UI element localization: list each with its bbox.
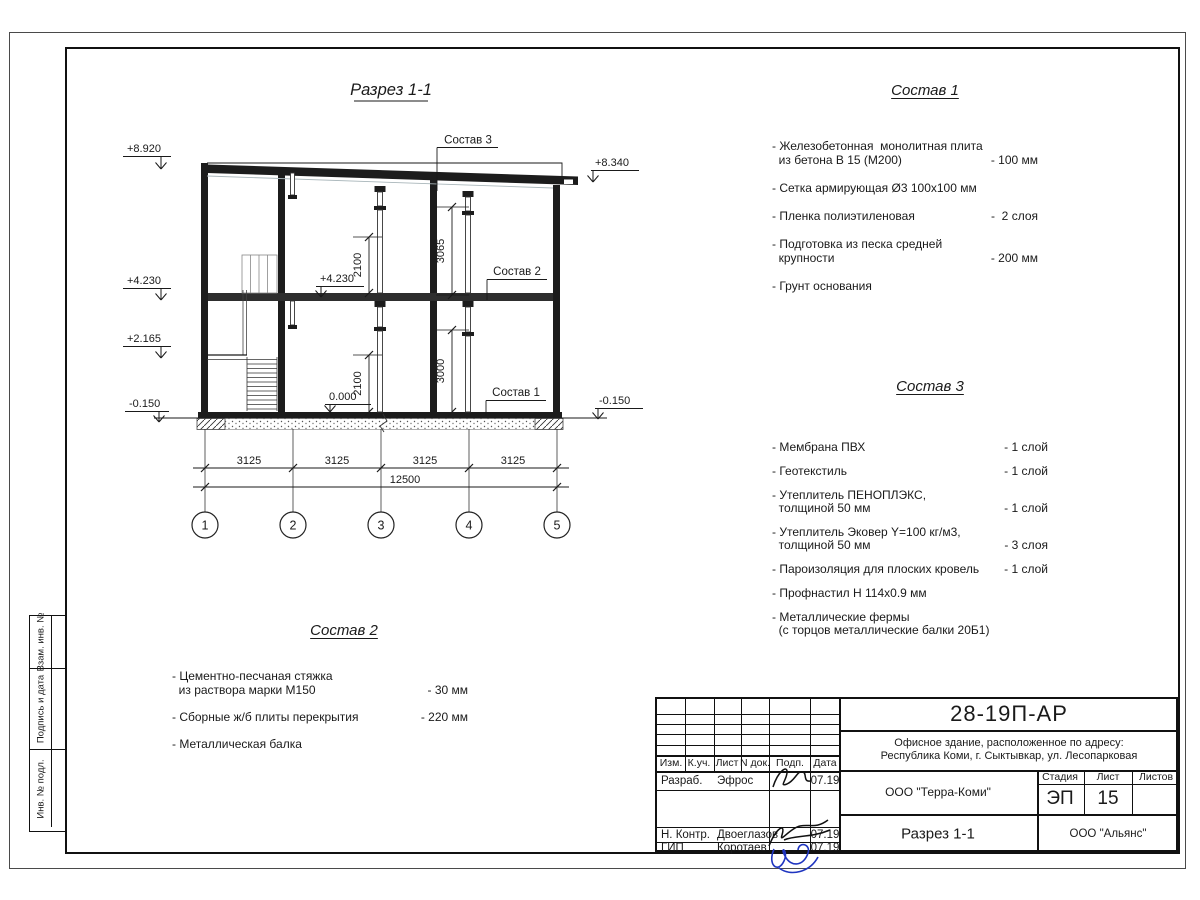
- axis-4: 4: [466, 519, 473, 533]
- dim-bay-1: 3125: [237, 455, 261, 467]
- elevation-top-right: +8.340: [588, 157, 640, 182]
- spec-sostav1-title: Состав 1: [792, 82, 1058, 99]
- dim-3000: 3000: [435, 359, 447, 383]
- spec-item: - Металлическая балка: [172, 737, 468, 751]
- spec-item: - Утеплитель Эковер Y=100 кг/м3, толщино…: [772, 526, 1048, 552]
- signature-razrab: [773, 769, 810, 787]
- spec-item: - Железобетонная монолитная плита из бет…: [772, 139, 1038, 167]
- spec-sostav2-title: Состав 2: [196, 622, 492, 639]
- svg-text:+4.230: +4.230: [320, 273, 354, 285]
- elevation-top-left: +8.920: [123, 143, 171, 169]
- spec-item: - Грунт основания: [772, 279, 1038, 293]
- signature-nkontr: [769, 820, 830, 846]
- spec-sostav2-block: Состав 2 - Цементно-песчаная стяжка из р…: [172, 622, 468, 764]
- spec-item: - Профнастил Н 114х0.9 мм: [772, 587, 1048, 600]
- axis-1: 1: [202, 519, 209, 533]
- signatures: [657, 699, 1180, 879]
- dim-total: 12500: [390, 474, 421, 486]
- spec-item: - Сетка армирующая Ø3 100х100 мм: [772, 181, 1038, 195]
- leader-sostav2-label: Состав 2: [493, 266, 541, 278]
- spec-item: - Мембрана ПВХ - 1 слой: [772, 441, 1048, 454]
- elevation-ground-left: -0.150: [125, 398, 169, 422]
- dim-2100-upper: 2100: [352, 253, 364, 277]
- svg-text:+2.165: +2.165: [127, 333, 161, 345]
- spec-sostav1-block: Состав 1 - Железобетонная монолитная пли…: [772, 82, 1038, 307]
- axis-3: 3: [378, 519, 385, 533]
- spec-sostav3-title: Состав 3: [792, 378, 1068, 395]
- spec-item: - Пароизоляция для плоских кровель - 1 с…: [772, 563, 1048, 576]
- elevation-ground-right: -0.150: [593, 395, 644, 419]
- axis-2: 2: [290, 519, 297, 533]
- svg-text:+8.340: +8.340: [595, 157, 629, 169]
- dim-bay-2: 3125: [325, 455, 349, 467]
- spec-item: - Геотекстиль - 1 слой: [772, 465, 1048, 478]
- spec-item: - Металлические фермы (с торцов металлич…: [772, 611, 1048, 637]
- strip-inv: Инв. № подл.: [30, 750, 66, 827]
- spec-item: - Сборные ж/б плиты перекрытия - 220 мм: [172, 710, 468, 724]
- leader-sostav1: Состав 1: [486, 387, 546, 416]
- spec-item: - Подготовка из песка средней крупности …: [772, 237, 1038, 265]
- section-title-text: Разрез 1-1: [350, 81, 432, 99]
- side-strips: Взам. инв. № Подпись и дата Инв. № подл.: [29, 615, 67, 832]
- dim-2100-lower: 2100: [352, 371, 364, 395]
- horizontal-dimensions: 3125 3125 3125 3125 12500: [193, 429, 569, 512]
- strip-inv-label: Инв. № подл.: [36, 759, 47, 818]
- dim-bay-3: 3125: [413, 455, 437, 467]
- dim-3065: 3065: [435, 239, 447, 263]
- spec-sostav3-block: Состав 3 - Мембрана ПВХ - 1 слой - Геоте…: [772, 378, 1048, 648]
- svg-text:-0.150: -0.150: [599, 395, 630, 407]
- title-block: Изм. К.уч. Лист N док. Подп. Дата Разраб…: [655, 697, 1178, 852]
- elevation-landing: +2.165: [123, 333, 171, 358]
- svg-text:+8.920: +8.920: [127, 143, 161, 155]
- leader-sostav1-label: Состав 1: [492, 387, 540, 399]
- strip-podpis-label: Подпись и дата: [36, 675, 47, 743]
- axis-bubbles: 1 2 3 4 5: [192, 512, 570, 538]
- svg-text:-0.150: -0.150: [129, 398, 160, 410]
- strip-vzam-label: Взам. инв. №: [36, 613, 47, 672]
- staircase: [207, 255, 277, 411]
- drawing-title: Разрез 1-1: [350, 81, 432, 101]
- signature-gip: [772, 845, 818, 873]
- strip-podpis: Подпись и дата: [30, 669, 66, 750]
- svg-text:+4.230: +4.230: [127, 275, 161, 287]
- spec-item: - Пленка полиэтиленовая - 2 слоя: [772, 209, 1038, 223]
- elevation-mid-left: +4.230: [123, 275, 171, 300]
- spec-item: - Утеплитель ПЕНОПЛЭКС, толщиной 50 мм -…: [772, 489, 1048, 515]
- axis-5: 5: [554, 519, 561, 533]
- strip-vzam: Взам. инв. №: [30, 616, 66, 669]
- spec-item: - Цементно-песчаная стяжка из раствора м…: [172, 669, 468, 697]
- dim-bay-4: 3125: [501, 455, 525, 467]
- leader-sostav3-label: Состав 3: [444, 135, 492, 147]
- elevation-zero: 0.000: [325, 391, 372, 412]
- vertical-dimensions: 3065 3000 2100 2100: [352, 203, 469, 416]
